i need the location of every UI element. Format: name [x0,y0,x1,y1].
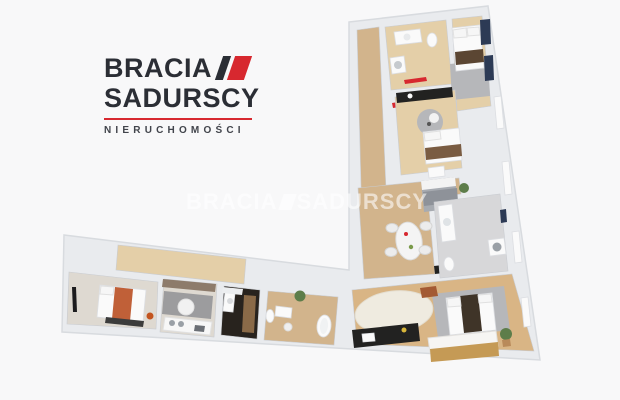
watermark: BRACIA SADURSCY [186,189,428,215]
logo-line2: SADURSCY [104,85,260,112]
watermark-roof-icon [278,194,297,210]
basin [404,34,411,41]
pillow [424,131,441,141]
plant [500,328,512,340]
logo-red-rule [104,118,252,120]
throw [194,325,205,332]
room-bedroom-middle [395,87,462,178]
pillow [178,321,184,327]
accent-rug [420,286,438,298]
room-lounge [160,279,217,337]
changing-table [275,306,292,318]
basin [266,310,274,323]
toilet [427,33,437,47]
room-nursery [264,291,338,346]
agency-logo: BRACIA SADURSCY NIERUCHOMOŚCI [104,55,260,136]
watermark-word1: BRACIA [186,189,278,215]
logo-line1: BRACIA [104,55,260,82]
room-bathroom-right [434,194,508,278]
plate [404,232,408,236]
chair [386,224,398,233]
towel [500,209,507,223]
armchair [428,166,445,178]
chair [420,222,432,231]
pillow [478,294,492,303]
plate [409,245,413,249]
watermark-word2: SADURSCY [297,189,428,215]
room-bedroom-top-right [450,16,494,111]
chair [419,246,431,255]
screenshot-canvas: BRACIA SADURSCY NIERUCHOMOŚCI BRACIA SAD… [0,0,620,400]
room-bathroom-top [385,20,452,90]
chair [385,248,397,257]
decor [147,313,154,320]
pillow [447,297,461,307]
logo-tagline: NIERUCHOMOŚCI [104,126,260,136]
decor [402,328,407,333]
basin [443,218,451,226]
plant [295,291,306,302]
pillow [100,286,114,295]
pillow [169,320,175,326]
bed-blanket [112,287,133,321]
wardrobe [480,19,491,45]
plant-pot [502,339,511,347]
room-dark-bathroom [221,286,260,339]
logo-roof-icon [219,56,248,80]
wardrobe [484,55,494,81]
pillow [453,28,467,38]
logo-word-sadurscy: SADURSCY [104,85,260,112]
door-panel [242,295,256,333]
round-rug [178,299,194,315]
kitchen-sink [362,333,375,342]
logo-word-bracia: BRACIA [104,55,212,82]
basin [227,298,233,304]
decor [408,94,413,99]
pillow [467,27,480,36]
plant [459,183,469,193]
stool [284,323,292,331]
room-bedroom-left [67,272,158,329]
washer-door [493,243,502,252]
washer-door [394,61,402,69]
